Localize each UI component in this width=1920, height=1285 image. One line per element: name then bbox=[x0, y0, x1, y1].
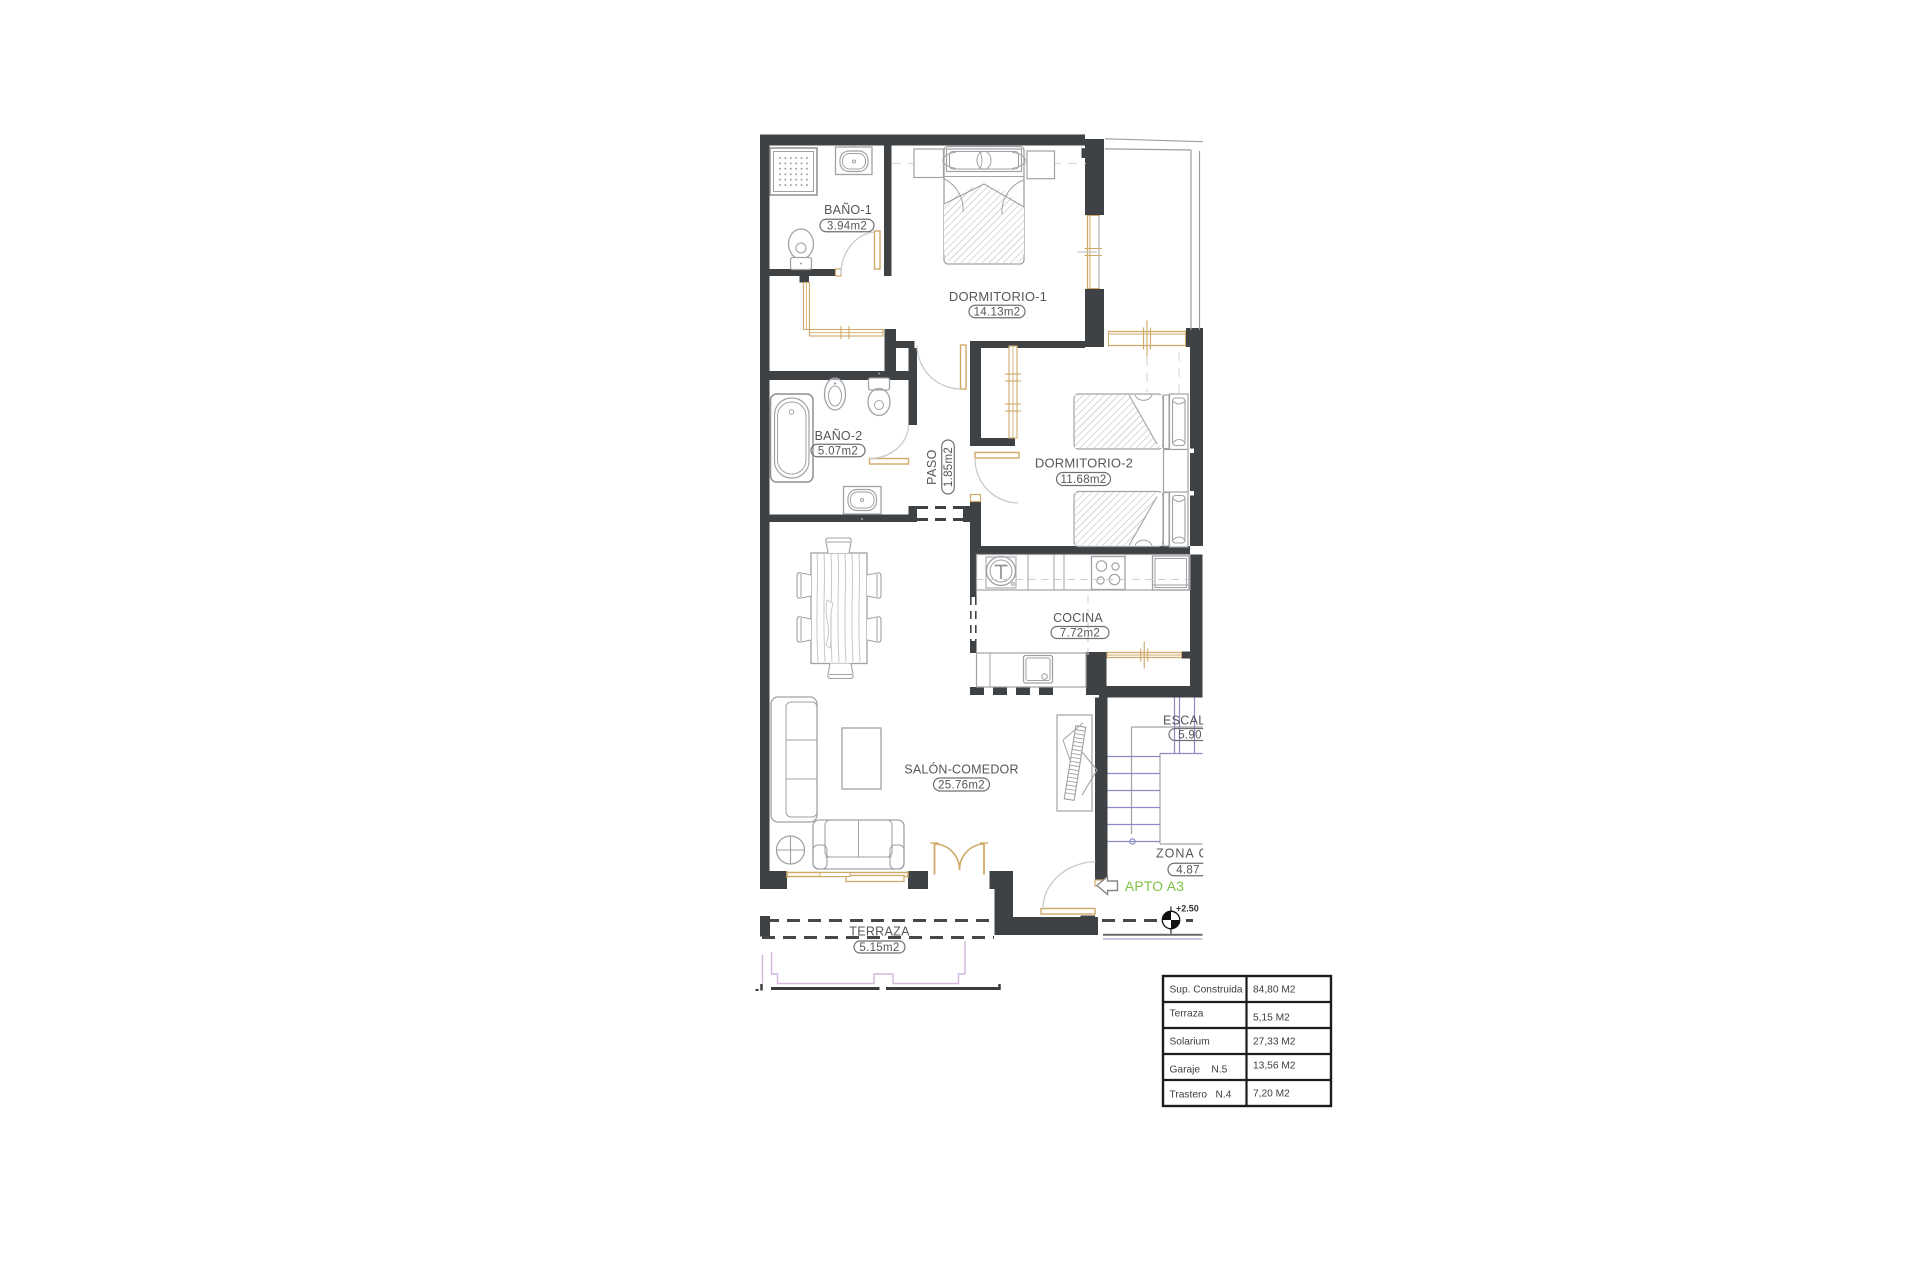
svg-text:DORMITORIO-2: DORMITORIO-2 bbox=[1035, 456, 1133, 471]
svg-text:SALÓN-COMEDOR: SALÓN-COMEDOR bbox=[904, 762, 1018, 777]
svg-text:APTO A3: APTO A3 bbox=[1125, 879, 1184, 894]
svg-text:Garaje N.5: Garaje N.5 bbox=[1170, 1065, 1228, 1076]
svg-text:BAÑO-1: BAÑO-1 bbox=[824, 203, 872, 217]
svg-text:Sup. Construida: Sup. Construida bbox=[1170, 985, 1243, 996]
svg-text:Trastero N.4: Trastero N.4 bbox=[1170, 1090, 1232, 1101]
svg-text:5.90: 5.90 bbox=[1178, 730, 1202, 742]
svg-text:5,15 M2: 5,15 M2 bbox=[1253, 1013, 1290, 1024]
svg-text:TERRAZA: TERRAZA bbox=[849, 925, 910, 939]
svg-text:5.15m2: 5.15m2 bbox=[859, 942, 899, 954]
svg-text:BAÑO-2: BAÑO-2 bbox=[815, 429, 863, 443]
svg-text:5.07m2: 5.07m2 bbox=[818, 446, 858, 458]
svg-text:+2.50: +2.50 bbox=[1176, 904, 1199, 914]
svg-text:DORMITORIO-1: DORMITORIO-1 bbox=[949, 289, 1047, 304]
svg-text:ESCAL: ESCAL bbox=[1163, 714, 1206, 728]
svg-text:Solarium: Solarium bbox=[1170, 1037, 1210, 1048]
svg-text:13,56 M2: 13,56 M2 bbox=[1253, 1061, 1296, 1072]
svg-text:27,33 M2: 27,33 M2 bbox=[1253, 1037, 1296, 1048]
svg-text:7.72m2: 7.72m2 bbox=[1060, 628, 1100, 640]
svg-text:14.13m2: 14.13m2 bbox=[974, 307, 1021, 319]
svg-text:11.68m2: 11.68m2 bbox=[1061, 474, 1107, 486]
svg-text:3.94m2: 3.94m2 bbox=[827, 221, 867, 233]
svg-text:Terraza: Terraza bbox=[1170, 1009, 1204, 1020]
svg-text:7,20 M2: 7,20 M2 bbox=[1253, 1089, 1290, 1100]
svg-text:PASO: PASO bbox=[925, 449, 939, 485]
svg-text:COCINA: COCINA bbox=[1053, 611, 1103, 625]
svg-text:4.87: 4.87 bbox=[1176, 865, 1200, 877]
svg-text:84,80 M2: 84,80 M2 bbox=[1253, 985, 1296, 996]
svg-text:ZONA C: ZONA C bbox=[1156, 847, 1209, 861]
svg-text:25.76m2: 25.76m2 bbox=[938, 780, 985, 792]
svg-text:1.85m2: 1.85m2 bbox=[943, 447, 955, 487]
